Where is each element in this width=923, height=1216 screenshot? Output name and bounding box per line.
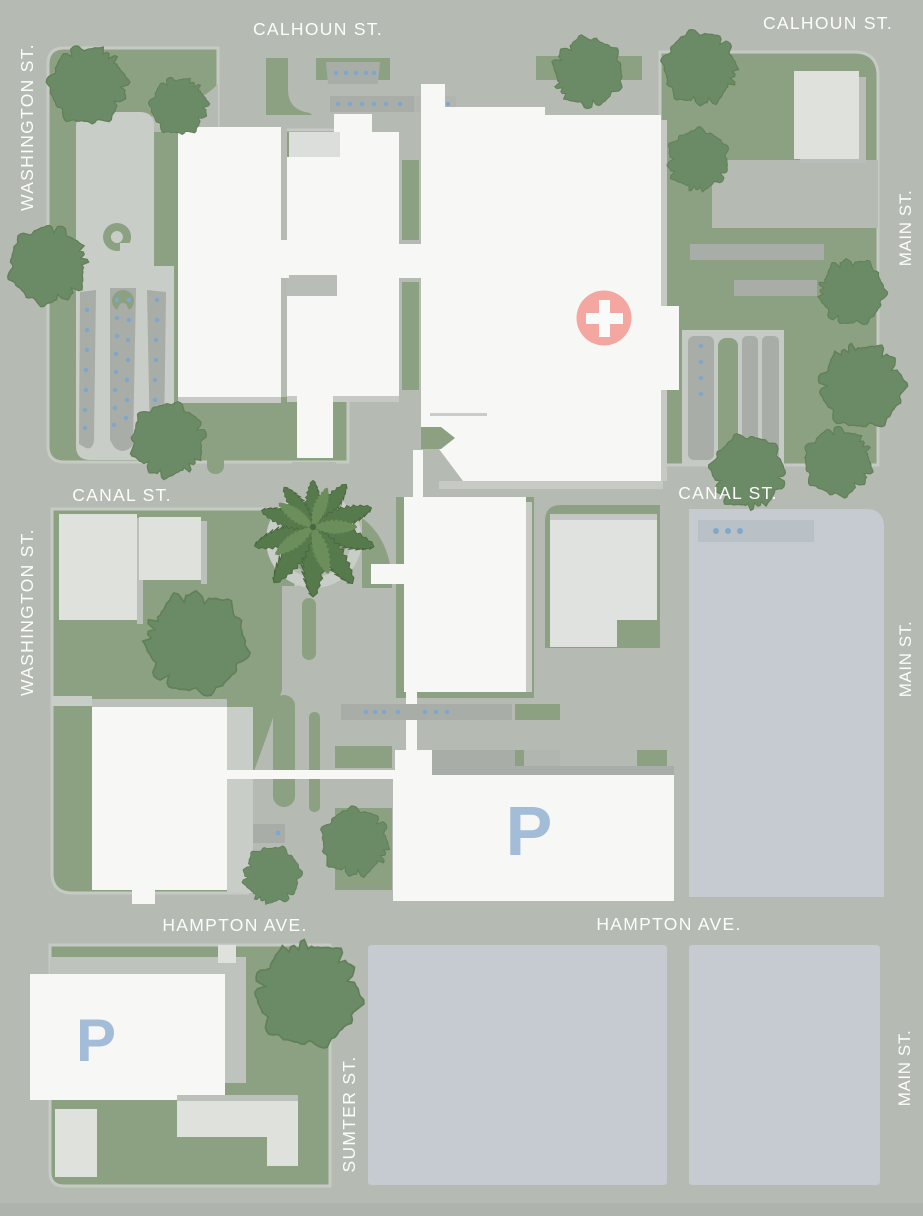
svg-text:CANAL ST.: CANAL ST. — [678, 483, 778, 503]
svg-text:MAIN ST.: MAIN ST. — [896, 621, 915, 698]
svg-text:SUMTER ST.: SUMTER ST. — [339, 1055, 359, 1172]
svg-text:HAMPTON AVE.: HAMPTON AVE. — [596, 914, 741, 934]
svg-text:WASHINGTON ST.: WASHINGTON ST. — [17, 43, 37, 211]
svg-text:P: P — [76, 1007, 116, 1074]
svg-text:MAIN ST.: MAIN ST. — [895, 1030, 914, 1107]
svg-text:HAMPTON AVE.: HAMPTON AVE. — [162, 915, 307, 935]
svg-text:CALHOUN ST.: CALHOUN ST. — [253, 19, 383, 39]
svg-text:MAIN ST.: MAIN ST. — [896, 190, 915, 267]
svg-text:CALHOUN ST.: CALHOUN ST. — [763, 13, 893, 33]
svg-text:CANAL ST.: CANAL ST. — [72, 485, 172, 505]
svg-text:P: P — [506, 792, 553, 870]
svg-text:WASHINGTON ST.: WASHINGTON ST. — [17, 528, 37, 696]
